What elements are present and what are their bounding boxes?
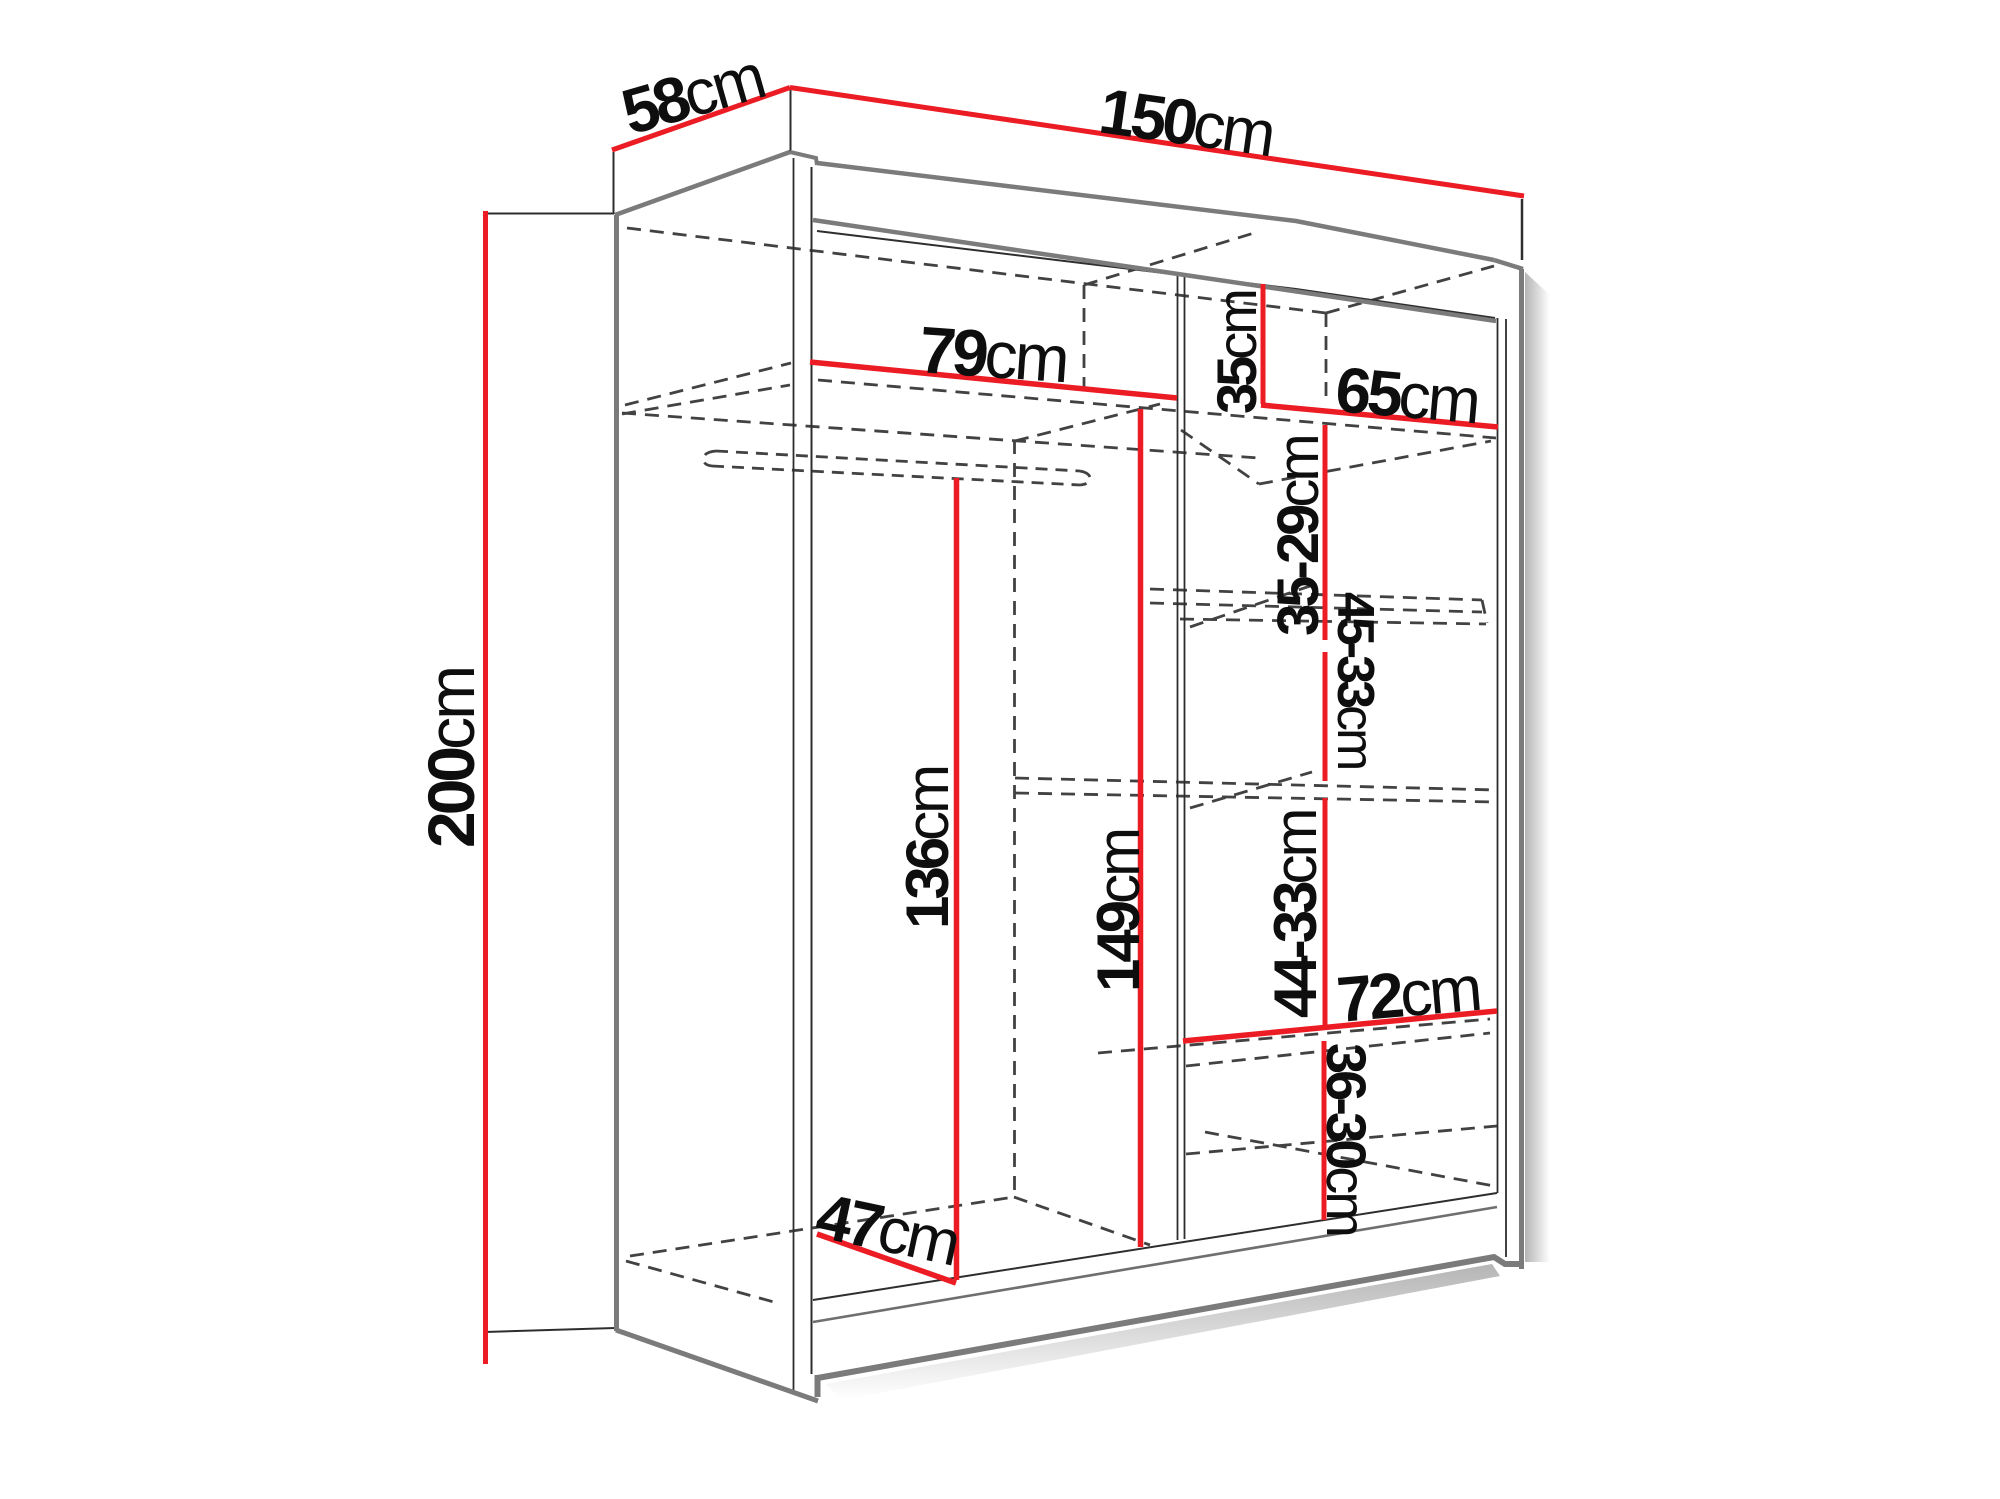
svg-text:35cm: 35cm (1205, 291, 1268, 414)
svg-text:45-33cm: 45-33cm (1326, 592, 1384, 768)
svg-text:79cm: 79cm (917, 312, 1069, 396)
svg-text:72cm: 72cm (1334, 952, 1482, 1036)
svg-text:36-30cm: 36-30cm (1315, 1043, 1378, 1235)
svg-text:149cm: 149cm (1085, 830, 1152, 992)
svg-text:200cm: 200cm (414, 668, 488, 848)
svg-text:35-29cm: 35-29cm (1266, 436, 1331, 636)
svg-text:136cm: 136cm (894, 767, 961, 929)
svg-text:65cm: 65cm (1333, 353, 1481, 437)
svg-text:44-33cm: 44-33cm (1262, 811, 1329, 1018)
